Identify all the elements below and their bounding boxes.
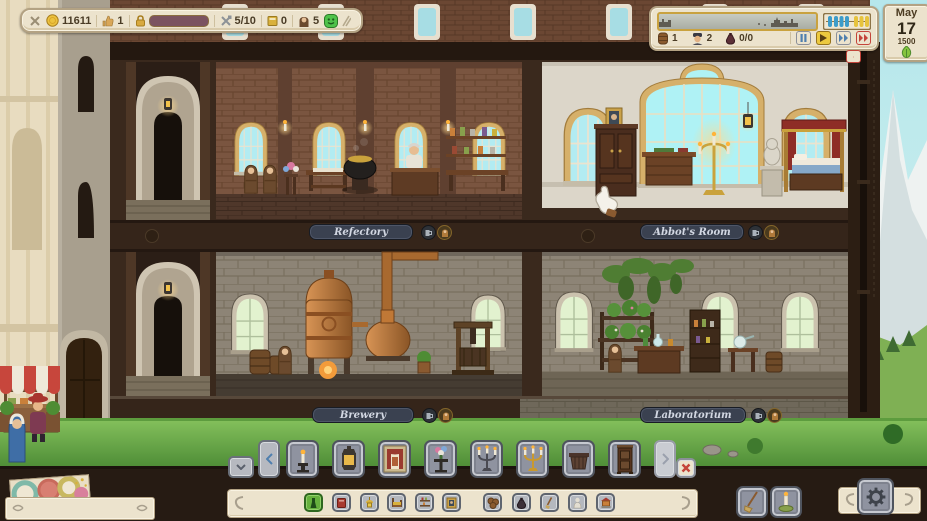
- divider: [790, 32, 791, 44]
- tapestry-icon: [383, 445, 407, 473]
- gold-counter: 11611: [46, 14, 91, 27]
- monk-slot-icon: [771, 411, 779, 420]
- broom-small-icon: [544, 497, 555, 509]
- hotbar-slot-tall-cabinet[interactable]: [608, 440, 641, 478]
- monk-icon: [298, 14, 310, 27]
- category-tools[interactable]: [540, 493, 559, 512]
- max-speed-icon: [859, 34, 868, 42]
- category-lamps[interactable]: [360, 493, 379, 512]
- workers-value: 5/10: [235, 15, 256, 27]
- barrel-counter: 1: [657, 32, 678, 45]
- delivery-counter: 0/0: [725, 32, 753, 45]
- category-portraits[interactable]: [442, 493, 461, 512]
- divider: [292, 15, 293, 27]
- sack-icon: [725, 32, 736, 45]
- tankard-icon: [752, 229, 759, 237]
- abacus-icon[interactable]: [823, 13, 871, 30]
- hotbar-slot-flower-stand[interactable]: [424, 440, 457, 478]
- cabinet-icon: [615, 444, 635, 474]
- ledger-icon: [267, 15, 278, 27]
- fast-forward-button[interactable]: [836, 31, 851, 45]
- time-panel: 1 2 0/0: [649, 6, 879, 51]
- guest-counter: 2: [691, 32, 713, 45]
- laboratorium-monk-slot[interactable]: [767, 408, 782, 423]
- scroll-curl-left: [232, 495, 246, 511]
- progress-bar: [149, 15, 209, 27]
- chevron-left-icon: [266, 453, 273, 465]
- portrait-icon: [446, 497, 457, 509]
- monks-value: 5: [313, 15, 319, 27]
- hotbar-slot-candle-holder[interactable]: [286, 440, 319, 478]
- scroll-curl-right: [679, 495, 693, 511]
- season-leaf-icon: [900, 46, 913, 58]
- hotbar-slot-lantern[interactable]: [332, 440, 365, 478]
- hanging-lamp-icon: [364, 497, 375, 509]
- max-speed-button[interactable]: [856, 31, 871, 45]
- notification-banner[interactable]: [5, 497, 155, 520]
- pause-button[interactable]: [796, 31, 811, 45]
- mood-indicator: [324, 14, 351, 28]
- tankard-icon: [755, 412, 762, 420]
- ledger-value: 0: [281, 15, 287, 27]
- plant-icon: [308, 497, 319, 509]
- gold-value: 11611: [62, 15, 91, 27]
- hotbar-slot-wall-tapestry[interactable]: [378, 440, 411, 478]
- coin-icon: [46, 14, 59, 27]
- barrel-value: 1: [672, 33, 678, 44]
- shelf-icon: [419, 497, 431, 508]
- brewery-monk-slot[interactable]: [438, 408, 453, 423]
- monks-counter: 5: [298, 14, 319, 27]
- shrine-icon: [600, 497, 612, 509]
- skip-day-button[interactable]: [846, 50, 861, 63]
- barrel-icon: [657, 32, 669, 45]
- divider: [214, 15, 215, 27]
- kegs-icon: [487, 497, 499, 509]
- category-beds[interactable]: [387, 493, 406, 512]
- planter-icon: [567, 445, 591, 473]
- pause-icon: [800, 34, 807, 42]
- delivery-value: 0/0: [739, 33, 753, 44]
- tankard-icon: [425, 229, 432, 237]
- divider: [129, 15, 130, 27]
- gold-candelabra-icon: [521, 445, 545, 473]
- room-label-refectory[interactable]: Refectory: [309, 224, 413, 240]
- tankard-icon: [426, 412, 433, 420]
- category-sacks[interactable]: [512, 493, 531, 512]
- divider: [96, 15, 97, 27]
- room-label-laboratorium[interactable]: Laboratorium: [640, 407, 746, 423]
- settings-button[interactable]: [857, 478, 894, 515]
- laboratorium-item-slot[interactable]: [751, 408, 766, 423]
- abbots-room-item-slot[interactable]: [748, 225, 763, 240]
- bed-icon: [391, 497, 403, 508]
- resource-bar: 11611 1 5/10 0 5: [20, 8, 363, 33]
- banner-flourish-right: [136, 502, 148, 514]
- date-day: 17: [897, 20, 916, 37]
- ledger-counter: 0: [267, 15, 287, 27]
- hotbar-slot-wooden-planter[interactable]: [562, 440, 595, 478]
- lit-candle-icon: [777, 491, 795, 513]
- divider: [261, 15, 262, 27]
- category-books[interactable]: [332, 493, 351, 512]
- chevron-right-icon: [662, 453, 669, 465]
- skip-icon: [853, 53, 854, 61]
- lantern-icon: [339, 445, 359, 473]
- padlock-icon: [135, 15, 146, 27]
- monk-slot-icon: [768, 228, 776, 237]
- date-card: May 17 1500: [883, 4, 927, 62]
- category-kegs[interactable]: [483, 493, 502, 512]
- workers-counter: 5/10: [220, 15, 256, 27]
- hotbar-next-button[interactable]: [654, 440, 676, 478]
- skyline-graphic: [659, 16, 809, 27]
- category-plants[interactable]: [304, 493, 323, 512]
- room-label-brewery[interactable]: Brewery: [312, 407, 414, 423]
- thumbs-up-icon: [102, 15, 114, 27]
- monk-slot-icon: [441, 228, 449, 237]
- game-screen: 11611 1 5/10 0 5: [0, 0, 927, 521]
- flower-stand-icon: [430, 445, 452, 473]
- candle-holder-icon: [292, 445, 314, 473]
- reputation-counter: 1: [102, 15, 123, 27]
- room-label-abbots-room[interactable]: Abbot's Room: [640, 224, 744, 240]
- build-progress: [135, 15, 209, 27]
- chevron-down-icon: [236, 464, 246, 470]
- wing-curl-right: [902, 492, 915, 507]
- wing-curl-left: [844, 492, 857, 507]
- date-year: 1500: [898, 38, 916, 46]
- broom-tool-button[interactable]: [736, 486, 768, 518]
- hotbar-slot-gold-candelabra[interactable]: [516, 440, 549, 478]
- happy-face-icon: [324, 14, 338, 28]
- collapse-hotbar-button[interactable]: [228, 456, 254, 478]
- crossed-tools-icon: [29, 15, 41, 27]
- category-statues[interactable]: [568, 493, 587, 512]
- broom-icon: [742, 491, 762, 513]
- year-progress-bar: [657, 12, 818, 31]
- reputation-value: 1: [117, 15, 123, 27]
- work-tools-icon: [220, 15, 232, 27]
- guest-icon: [691, 32, 704, 45]
- banner-flourish-left: [12, 502, 24, 514]
- hotbar-slot-iron-candelabra[interactable]: [470, 440, 503, 478]
- fast-forward-icon: [839, 34, 848, 42]
- close-icon: [681, 463, 691, 473]
- statue-icon: [572, 497, 583, 509]
- gear-icon: [863, 484, 889, 510]
- play-icon: [820, 34, 827, 42]
- candle-tool-button[interactable]: [770, 486, 802, 518]
- category-bar: [227, 489, 698, 518]
- date-month: May: [896, 8, 917, 19]
- sack-dark-icon: [516, 497, 527, 509]
- book-icon: [336, 497, 347, 509]
- refectory-monk-slot[interactable]: [437, 225, 452, 240]
- refectory-item-slot[interactable]: [421, 225, 436, 240]
- play-button[interactable]: [816, 31, 831, 45]
- guest-value: 2: [707, 33, 713, 44]
- abbots-room-monk-slot[interactable]: [764, 225, 779, 240]
- disabled-slash-icon: [341, 15, 351, 27]
- hotbar-prev-button[interactable]: [258, 440, 280, 478]
- brewery-item-slot[interactable]: [422, 408, 437, 423]
- close-hotbar-button[interactable]: [676, 458, 696, 478]
- category-shrines[interactable]: [596, 493, 615, 512]
- iron-candelabra-icon: [475, 445, 499, 473]
- category-shelves[interactable]: [415, 493, 434, 512]
- monk-slot-icon: [442, 411, 450, 420]
